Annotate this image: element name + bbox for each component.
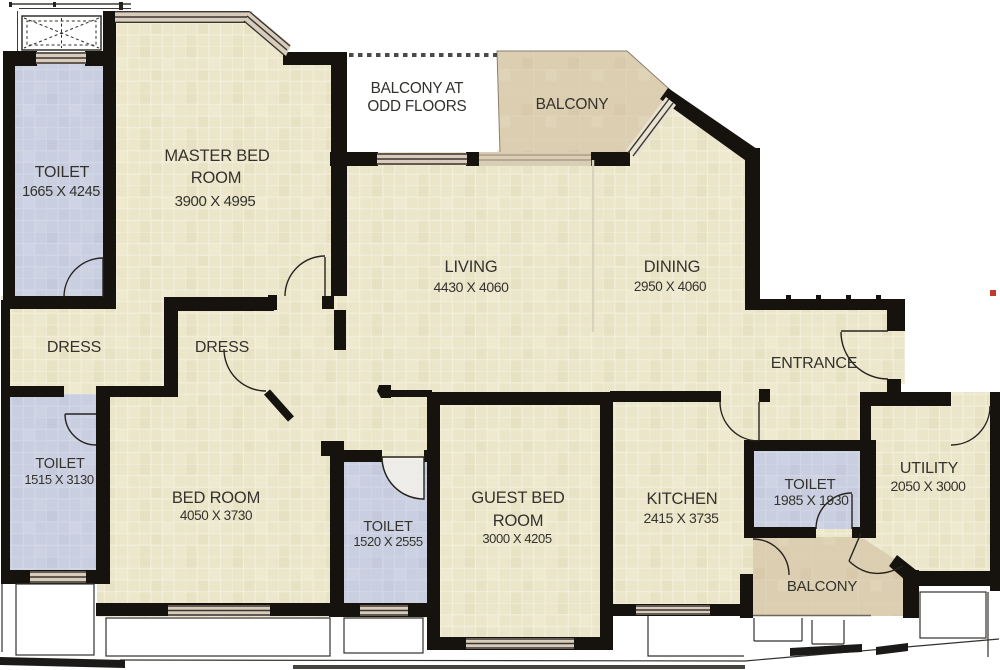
svg-text:3900 X 4995: 3900 X 4995 [175, 193, 256, 210]
svg-text:UTILITY: UTILITY [900, 460, 959, 477]
svg-text:1985 X 1930: 1985 X 1930 [773, 492, 849, 508]
svg-text:ROOM: ROOM [191, 169, 242, 187]
svg-text:MASTER BED: MASTER BED [164, 147, 270, 165]
svg-text:DRESS: DRESS [195, 339, 249, 356]
svg-text:1520 X 2555: 1520 X 2555 [353, 534, 423, 549]
svg-text:TOILET: TOILET [363, 519, 413, 535]
svg-text:2050 X 3000: 2050 X 3000 [890, 478, 966, 494]
svg-text:BALCONY AT: BALCONY AT [371, 80, 464, 97]
svg-text:DRESS: DRESS [47, 339, 101, 356]
svg-text:LIVING: LIVING [445, 258, 498, 276]
svg-text:BALCONY: BALCONY [536, 96, 609, 113]
svg-text:KITCHEN: KITCHEN [646, 490, 717, 508]
svg-text:TOILET: TOILET [35, 164, 90, 181]
svg-text:TOILET: TOILET [35, 456, 85, 472]
svg-text:ENTRANCE: ENTRANCE [771, 355, 857, 372]
svg-text:1665 X 4245: 1665 X 4245 [22, 184, 100, 200]
svg-text:DINING: DINING [644, 258, 701, 276]
svg-text:1515 X 3130: 1515 X 3130 [24, 472, 94, 487]
svg-text:3000 X 4205: 3000 X 4205 [482, 531, 552, 546]
svg-text:ROOM: ROOM [493, 512, 544, 530]
svg-text:ODD FLOORS: ODD FLOORS [367, 98, 466, 115]
svg-text:TOILET: TOILET [784, 476, 835, 493]
svg-text:BALCONY: BALCONY [787, 578, 857, 595]
svg-text:4050 X 3730: 4050 X 3730 [180, 508, 252, 523]
svg-text:4430 X 4060: 4430 X 4060 [433, 279, 509, 295]
svg-text:GUEST BED: GUEST BED [471, 489, 565, 507]
svg-text:2950 X 4060: 2950 X 4060 [634, 279, 706, 294]
svg-text:BED ROOM: BED ROOM [172, 489, 260, 507]
svg-text:2415 X 3735: 2415 X 3735 [643, 510, 719, 526]
